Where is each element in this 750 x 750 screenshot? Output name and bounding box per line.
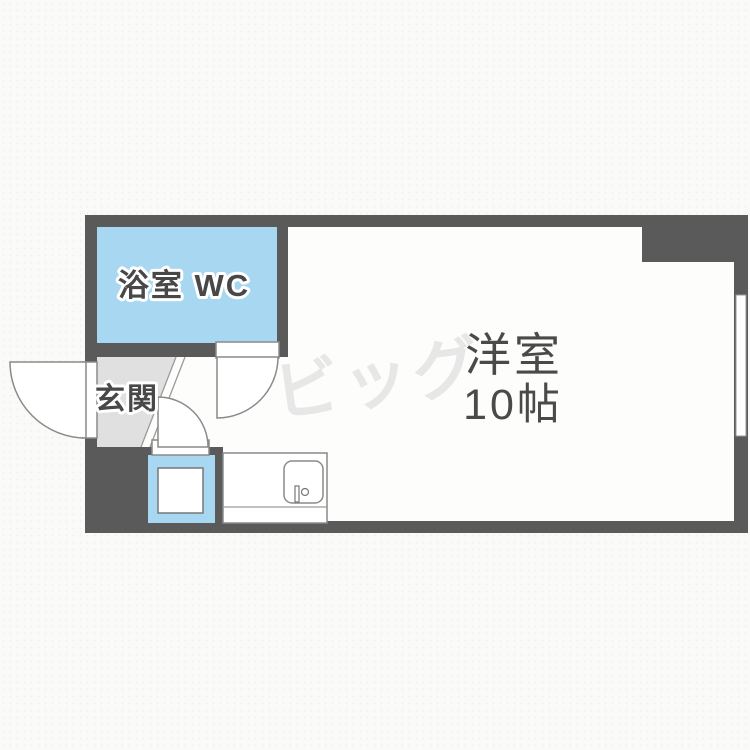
wall-below-bathroom	[97, 343, 217, 357]
wall-top	[85, 215, 748, 227]
washing-machine-pan	[158, 468, 203, 513]
sink-drain	[302, 489, 309, 496]
front-door-swing	[10, 362, 86, 438]
floorplan: ビッグ	[0, 0, 750, 750]
bathroom-door-leaf	[216, 342, 279, 358]
sink-faucet	[295, 486, 299, 502]
main-room-size-label: 10帖	[463, 381, 563, 429]
wall-right-of-bathroom	[277, 215, 288, 357]
wall-top-right-notch	[642, 227, 748, 262]
kitchen-sink	[284, 461, 323, 503]
window-right-wall	[736, 295, 746, 436]
kitchen-counter	[223, 453, 327, 523]
entrance-label: 玄関	[95, 382, 159, 416]
floorplan-canvas: ビッグ	[0, 0, 750, 750]
wall-left-stub	[85, 438, 97, 448]
bathroom-label: 浴室 WC	[118, 268, 250, 303]
main-room-label: 洋室	[465, 329, 563, 381]
wall-left-upper	[85, 215, 97, 363]
